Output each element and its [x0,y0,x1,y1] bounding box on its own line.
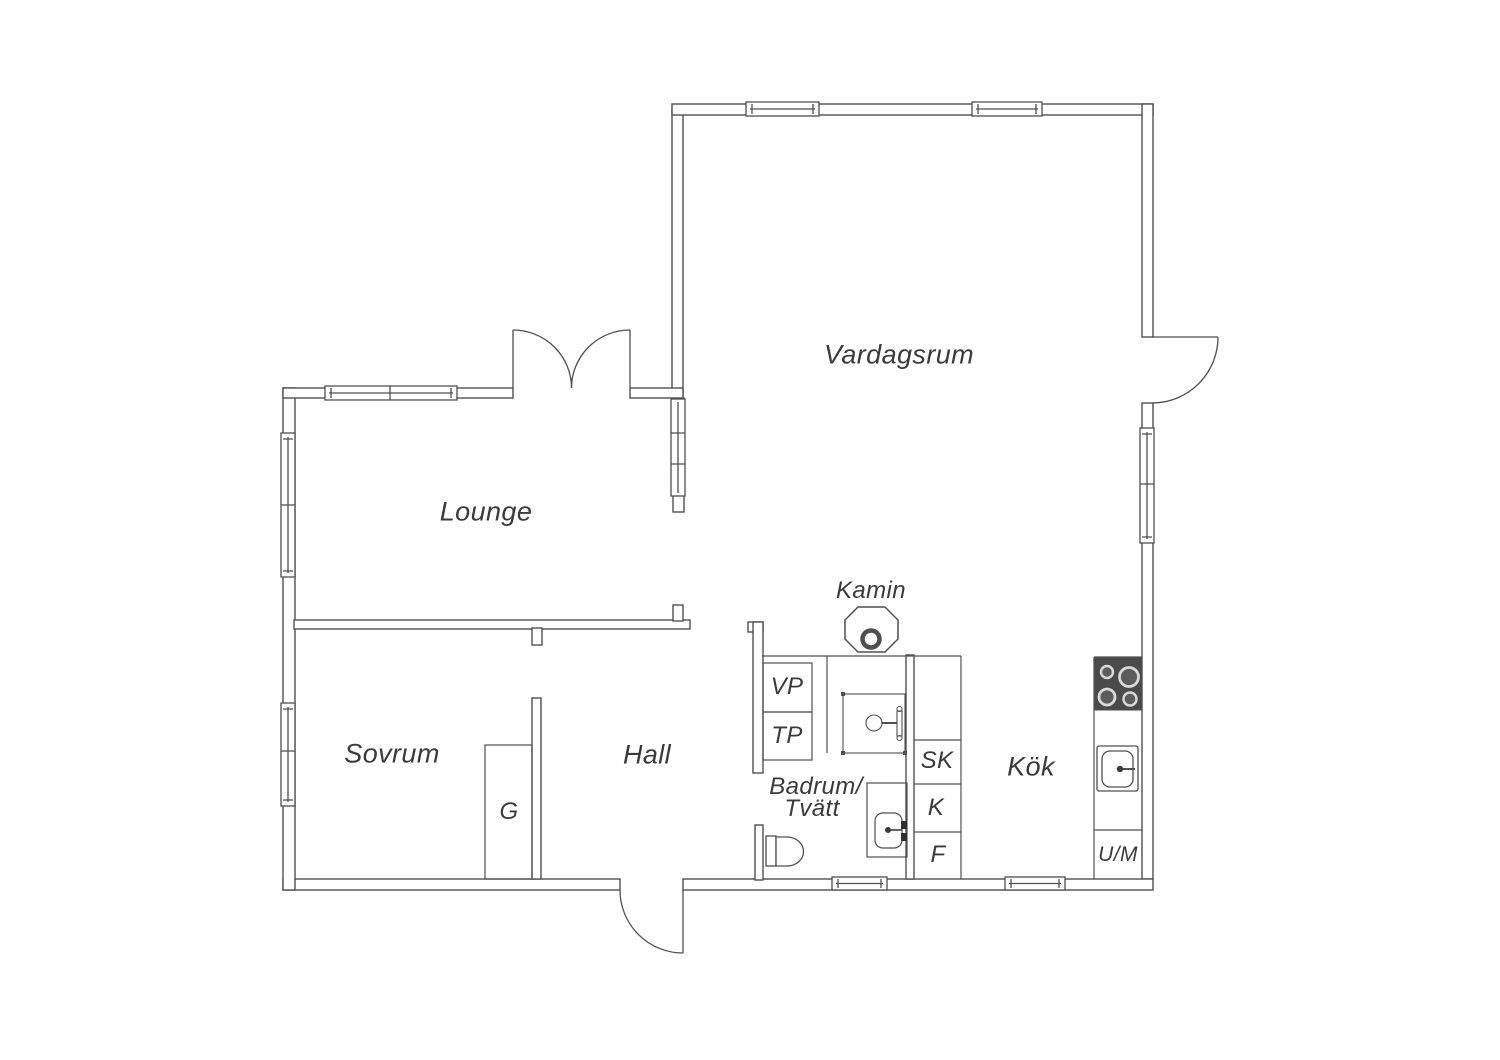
door-right-exterior [1152,337,1218,403]
wall-badrum-left-stub [755,825,763,880]
window-kok-bottom [1005,877,1065,890]
window-badrum-bottom [832,877,887,890]
wall-lounge-bottom [294,620,690,629]
label-g: G [499,798,518,826]
kamin-fireplace [845,607,898,652]
window-vardagsrum-top-1 [746,102,819,116]
room-label-kok: Kök [1007,752,1055,783]
wall-vardagsrum-left [672,110,683,398]
wall-sovrum-door-notch [532,628,542,645]
room-label-vardagsrum: Vardagsrum [824,340,974,371]
window-vardagsrum-interior [671,399,685,496]
wall-lounge-top-right [630,388,683,398]
wall-bottom-right [683,879,1153,890]
door-entrance [620,890,683,953]
wall-bottom-left [283,879,620,890]
shower-mixer-icon [866,707,902,741]
wall-badrum-left [753,622,763,773]
label-f: F [930,841,945,869]
room-label-lounge: Lounge [440,497,533,528]
label-sk: SK [921,747,954,775]
double-door-lounge [513,330,630,388]
window-lounge-left [281,433,295,577]
kitchen-sink-icon [1097,746,1138,791]
wall-top [672,104,1153,115]
toilet-icon [766,836,804,866]
window-lounge-top [325,386,457,400]
shower [841,692,907,755]
label-tp: TP [771,722,802,750]
wall-lounge-bottom-stub [673,605,683,621]
stove-icon [1094,658,1142,710]
window-vardagsrum-top-2 [972,102,1042,116]
bathroom-sink-icon [867,783,907,857]
label-vp: VP [771,673,804,701]
window-right [1140,428,1154,543]
label-um: U/M [1098,843,1138,867]
room-label-hall: Hall [623,740,671,771]
floorplan: Vardagsrum Lounge Sovrum Hall Kök Kamin … [0,0,1500,1060]
wall-right-upper [1142,104,1153,337]
window-sovrum-left [281,703,295,806]
floorplan-drawing [0,0,1500,1060]
label-kamin: Kamin [836,577,906,605]
room-label-sovrum: Sovrum [344,739,439,770]
room-label-badrum-line2: Tvätt [784,795,839,823]
label-k: K [928,794,944,822]
wall-sovrum-hall [532,698,541,879]
